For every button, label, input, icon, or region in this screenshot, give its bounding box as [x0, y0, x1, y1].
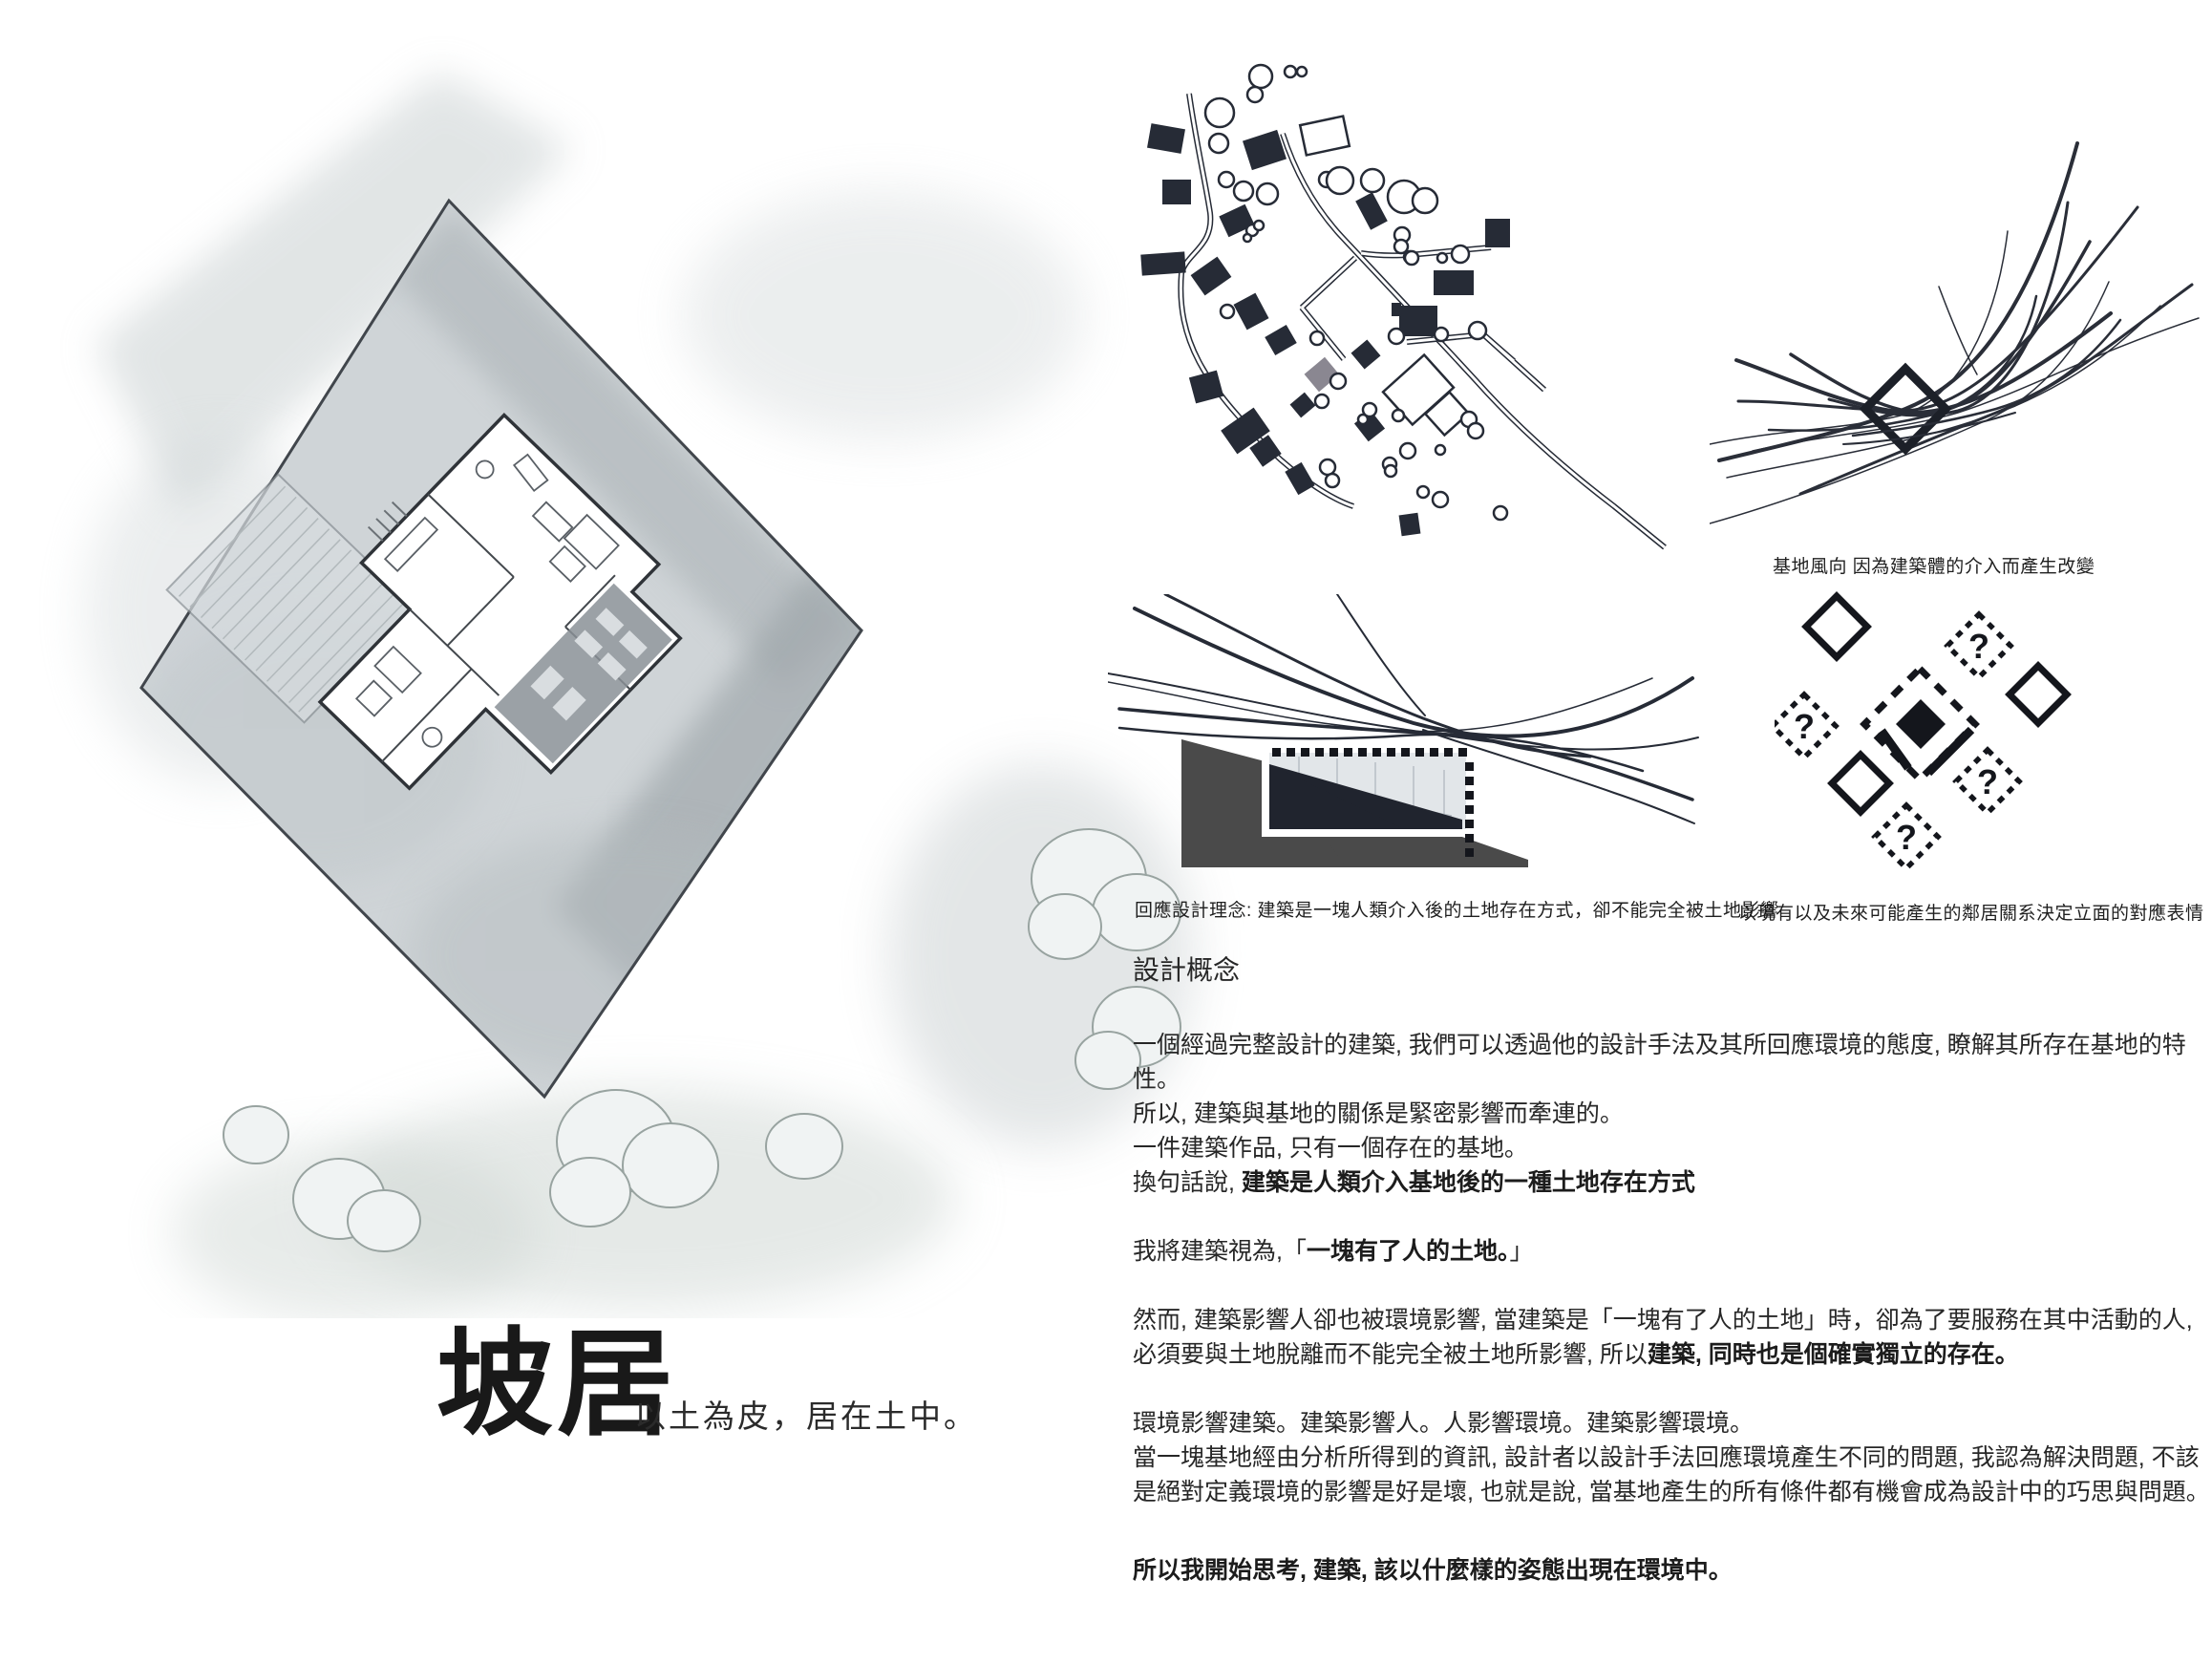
- project-tagline: 以土為皮，居在土中。: [634, 1391, 978, 1437]
- question-mark-icon: ?: [1977, 762, 1998, 801]
- neighbour-diamond-2: [2010, 666, 2067, 723]
- wind-diagram-caption: 基地風向 因為建築體的介入而產生改變: [1773, 552, 2095, 578]
- concept-paragraph: 一個經過完整設計的建築, 我們可以透過他的設計手法及其所回應環境的態度, 瞭解其…: [1133, 1028, 2210, 1097]
- facade-diagram-caption: 以現有以及未來可能產生的鄰居關系決定立面的對應表情: [1738, 899, 2204, 925]
- wind-flow-diagram: [1710, 115, 2206, 546]
- concept-paragraph: 然而, 建築影響人卻也被環境影響, 當建築是「一塊有了人的土地」時，卻為了要服務…: [1133, 1303, 2210, 1372]
- concept-paragraph: 我將建築視為,「一塊有了人的土地。」: [1133, 1234, 2210, 1269]
- portfolio-page: 坡居 以土為皮，居在土中。: [0, 0, 2212, 1665]
- concept-paragraph: 環境影響建築。建築影響人。人影響環境。建築影響環境。: [1133, 1406, 2210, 1441]
- concept-paragraph: 一件建築作品, 只有一個存在的基地。: [1133, 1131, 2210, 1165]
- concept-heading: 設計概念: [1133, 953, 2210, 988]
- question-mark-icon: ?: [1968, 627, 1989, 666]
- concept-paragraph: 換句話說, 建築是人類介入基地後的一種土地存在方式: [1133, 1165, 2210, 1200]
- section-diagram-caption: 回應設計理念: 建築是一塊人類介入後的土地存在方式，卻不能完全被土地影響: [1135, 896, 1779, 922]
- concept-paragraph: 所以, 建築與基地的關係是緊密影響而牽連的。: [1133, 1097, 2210, 1131]
- question-mark-icon: ?: [1794, 707, 1815, 746]
- question-mark-icon: ?: [1896, 818, 1917, 857]
- neighbour-diamond-1: [1806, 596, 1867, 657]
- neighbour-diamond-3: [1832, 755, 1889, 812]
- concept-paragraph: 當一塊基地經由分析所得到的資訊, 設計者以設計手法回應環境產生不同的問題, 我認…: [1133, 1441, 2210, 1509]
- site-solid-diamond: [1896, 699, 1946, 749]
- site-context-map: [1113, 55, 1686, 617]
- concept-conclusion: 所以我開始思考, 建築, 該以什麼樣的姿態出現在環境中。: [1133, 1553, 2210, 1588]
- neighbour-relation-diagram: ? ? ? ?: [1775, 585, 2180, 892]
- hand-drawn-site-plan: [29, 19, 1251, 1318]
- slope-section-diagram: [1108, 594, 1700, 898]
- design-concept-text: 設計概念 一個經過完整設計的建築, 我們可以透過他的設計手法及其所回應環境的態度…: [1133, 953, 2210, 1588]
